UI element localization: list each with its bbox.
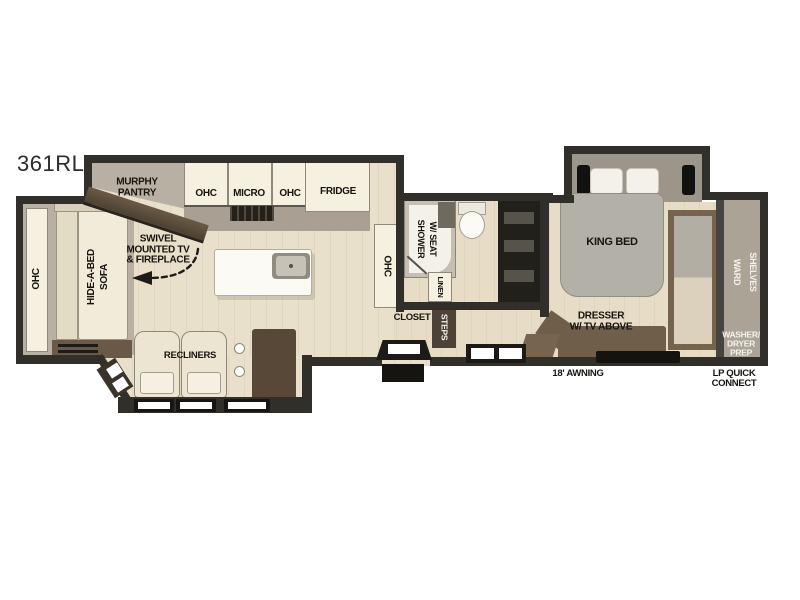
mid-ohc-label: OHC [381,255,392,276]
recliner-seat [140,372,174,394]
murphy-pantry-label: MURPHYPANTRY [116,178,158,199]
cooktop [230,206,274,221]
sofa-backrest [56,210,78,340]
entry-door-pane [388,344,420,354]
sofa-step-tread [58,350,98,353]
cap-window-left [577,165,590,195]
cap-window-right [682,165,695,195]
dresser-label: DRESSERW/ TV ABOVE [570,312,632,333]
ohc-label: OHC [195,189,216,200]
cabinet-divider [227,162,229,207]
wall [760,192,768,366]
double-window-pane [499,348,522,359]
toilet-bowl [459,211,485,239]
wall [396,193,553,201]
shower-label: SHOWER [415,220,425,259]
double-window-pane [471,348,494,359]
model-number: 361RL [17,151,84,177]
shower-seat [438,202,455,228]
side-ohc-label: OHC [32,268,43,289]
wall [16,196,23,364]
end-table [252,329,296,403]
bedroom-tv [596,351,680,363]
cup-holder [234,343,245,354]
shower-label: W/ SEAT [427,222,437,257]
floorplan-361rl: 361RL [0,0,800,600]
bedroom-door-panel [668,210,718,350]
wall [396,302,542,310]
recliner-seat [187,372,221,394]
bed-pillow [626,168,659,195]
wall [310,357,382,366]
hide-a-bed-label: SOFA [100,264,111,290]
wall [564,146,572,203]
wall [302,355,312,413]
slide-window-pane [138,402,170,409]
wall [396,200,404,312]
entry-step [382,364,424,382]
closet-label: CLOSET [394,313,431,323]
bed-pillow [590,168,623,195]
shelves-label: SHELVES [747,252,757,291]
awning-label: 18' AWNING [552,369,603,379]
slide-window-pane [228,402,266,409]
linen-label: LINEN [436,276,444,297]
wall [88,155,404,163]
wall [564,146,710,154]
king-bed-label: KING BED [586,237,637,248]
ohc-label: OHC [279,189,300,200]
fridge-label: FRIDGE [320,187,356,198]
micro-label: MICRO [233,189,265,200]
steps-label: STEPS [440,314,449,340]
hide-a-bed-label: HIDE-A-BED [87,249,98,305]
vanity-shelf [504,212,534,224]
washer-dryer-label: WASHER/DRYERPREP [722,331,760,358]
sink-faucet [289,264,293,268]
wall [16,355,100,364]
cabinet-divider [271,162,273,207]
swivel-tv-label: SWIVELMOUNTED TV& FIREPLACE [126,234,189,266]
vanity-shelf [504,270,534,282]
wall [540,195,549,317]
recliners-label: RECLINERS [164,351,216,361]
wall [16,196,92,204]
cup-holder [234,366,245,377]
sofa-step-tread [58,344,98,347]
lp-quick-connect-label: LP QUICKCONNECT [712,369,757,389]
wall [702,192,768,200]
ward-label: WARD [731,259,741,285]
slide-window-pane [180,402,212,409]
vanity-shelf [504,240,534,252]
